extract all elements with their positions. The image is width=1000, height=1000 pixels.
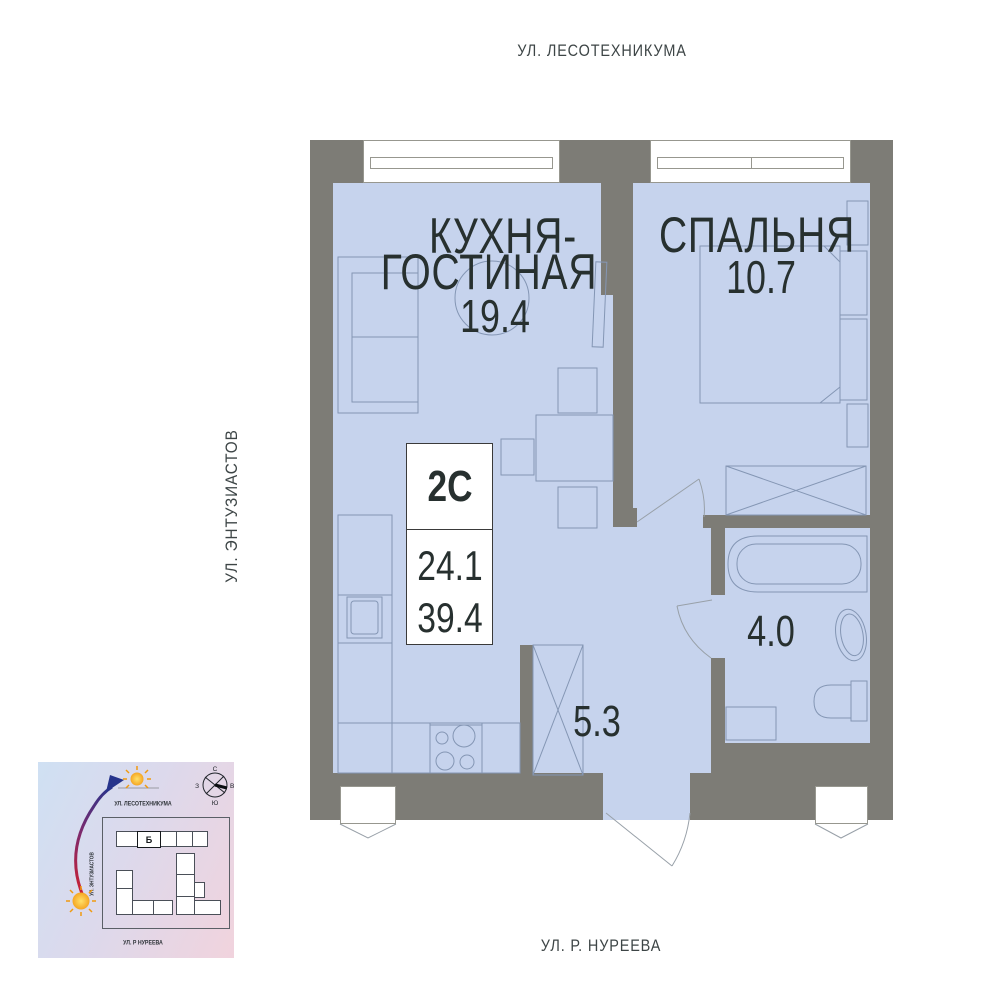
bathroom-door — [677, 600, 712, 658]
minimap-overlay: С Ю З В — [38, 762, 234, 958]
apartment-type: 2С — [427, 462, 472, 512]
facade-window-chevron-right — [815, 824, 868, 838]
sunrise-icon — [118, 766, 159, 788]
kitchen-sink — [347, 597, 382, 638]
floorplan-page: УЛ. ЛЕСОТЕХНИКУМА УЛ. ЭНТУЗИАСТОВ УЛ. Р.… — [0, 0, 1000, 1000]
info-box-divider — [407, 529, 492, 530]
arrow-head — [106, 775, 124, 792]
location-minimap: Б УЛ. ЛЕСОТЕХНИКУМА УЛ. ЭНТУЗИАСТОВ УЛ. … — [38, 762, 234, 958]
room-area-hallway: 5.3 — [573, 697, 621, 747]
dining-table-and-chairs — [501, 368, 613, 528]
bathtub — [728, 536, 867, 592]
compass-south: Ю — [212, 800, 219, 807]
apartment-info-box: 2С 24.1 39.4 — [406, 443, 493, 645]
stove — [430, 725, 482, 773]
washing-machine — [726, 707, 776, 740]
room-area-bedroom: 10.7 — [726, 250, 796, 304]
entry-door — [606, 813, 690, 866]
room-area-kitchen: 19.4 — [460, 289, 530, 343]
room-area-bathroom: 4.0 — [747, 607, 795, 657]
bedroom-wardrobe — [726, 466, 866, 515]
pillow — [840, 319, 867, 400]
living-area-value: 24.1 — [417, 542, 482, 590]
facade-window-chevron-left — [340, 824, 396, 838]
bedroom-door — [637, 479, 704, 522]
toilet — [814, 681, 867, 721]
compass-east: В — [230, 783, 234, 790]
compass-west: З — [195, 783, 199, 790]
nightstand-bottom — [847, 404, 868, 447]
bathroom-sink — [832, 607, 871, 663]
compass-north: С — [213, 766, 218, 773]
sun-path-arrow — [76, 787, 112, 896]
compass-icon: С Ю З В — [195, 766, 234, 807]
total-area-value: 39.4 — [417, 594, 482, 642]
